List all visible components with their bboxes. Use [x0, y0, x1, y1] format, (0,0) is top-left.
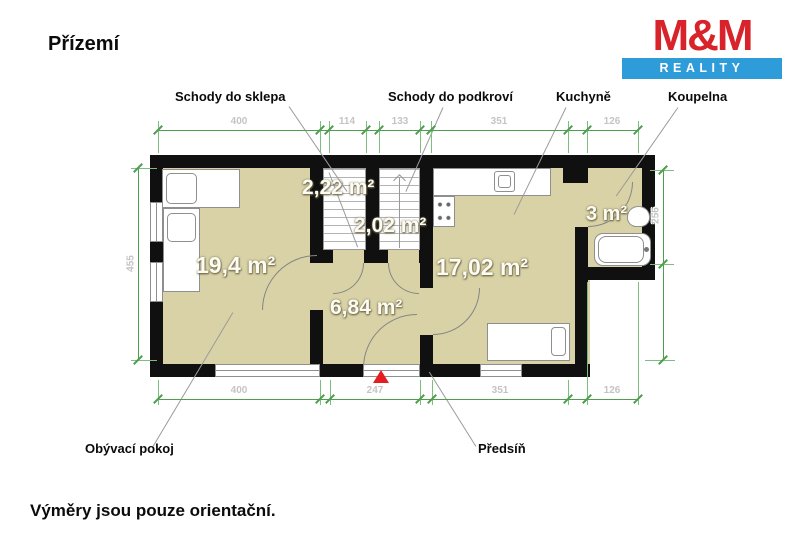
dimension-value: 351	[480, 385, 520, 396]
dimension-value: 256	[651, 196, 662, 236]
area-label-hallway: 6,84 m²	[330, 296, 402, 320]
dimension-line-left	[138, 168, 139, 360]
extension-line	[420, 380, 421, 405]
window-living-left-2	[150, 262, 163, 302]
callout-stairs-basement: Schody do sklepa	[175, 89, 286, 104]
bathtub-inner	[598, 236, 644, 263]
extension-line	[330, 380, 331, 405]
extension-line	[432, 380, 433, 405]
dimension-value: 247	[355, 385, 395, 396]
extension-line	[158, 380, 159, 405]
area-label-stairs-attic: 2,02 m²	[354, 214, 426, 238]
entrance-marker-icon	[373, 370, 389, 383]
kitchen-sink-basin	[498, 175, 511, 188]
extension-line	[587, 282, 588, 405]
callout-hallway: Předsíň	[478, 441, 526, 456]
stove	[433, 196, 455, 227]
area-label-living: 19,4 m²	[196, 252, 275, 279]
callout-kitchen: Kuchyně	[556, 89, 611, 104]
dimension-value: 114	[327, 116, 367, 127]
leader-line	[429, 372, 477, 447]
callout-living: Obývací pokoj	[85, 441, 174, 456]
bathroom-sink	[627, 206, 650, 227]
wall-stair-bottom-2	[364, 250, 388, 263]
callout-bathroom: Koupelna	[668, 89, 727, 104]
pillow	[166, 173, 197, 204]
dimension-value: 126	[592, 116, 632, 127]
floor-plan-page: Přízemí M&M REALITY	[0, 0, 800, 533]
bathtub-tap	[644, 247, 649, 252]
dimension-value: 351	[479, 116, 519, 127]
floor-plan: 19,4 m² 2,22 m² 2,02 m² 6,84 m² 17,02 m²…	[0, 0, 800, 533]
dimension-value: 126	[592, 385, 632, 396]
extension-line	[638, 282, 639, 405]
window-living-bottom	[215, 364, 320, 377]
window-living-left-1	[150, 202, 163, 242]
dimension-value: 455	[126, 244, 137, 284]
window-kitchen-bottom	[480, 364, 522, 377]
pillow	[167, 213, 196, 242]
dimension-value: 400	[219, 116, 259, 127]
footer-note: Výměry jsou pouze orientační.	[30, 501, 276, 521]
dimension-value: 400	[219, 385, 259, 396]
area-label-kitchen: 17,02 m²	[436, 254, 528, 281]
area-label-bathroom: 3 m²	[586, 203, 627, 226]
extension-line	[568, 380, 569, 405]
extension-line	[320, 380, 321, 405]
dimension-value: 133	[380, 116, 420, 127]
wall-living-partition-lower	[310, 310, 323, 364]
wall-chimney-chunk	[563, 155, 588, 183]
callout-stairs-attic: Schody do podkroví	[388, 89, 513, 104]
wall-hall-kitchen-lower	[420, 335, 433, 364]
wall-annex-bottom	[588, 267, 655, 280]
pillow	[551, 327, 566, 356]
